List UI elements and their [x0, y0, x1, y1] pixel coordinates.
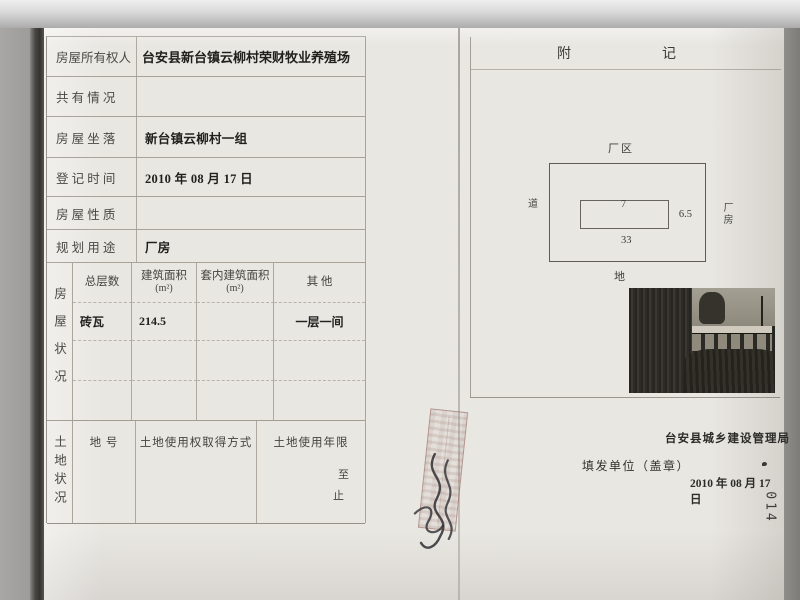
field-value-co-ownership: [137, 77, 365, 116]
form-row-house-nature: 房 屋 性 质: [47, 197, 365, 230]
land-status-side-text: 土地状况: [50, 435, 69, 509]
empty-cell: [274, 381, 365, 420]
column-header-area-unit: (m²): [155, 283, 172, 295]
cell-other: 一层一间: [274, 303, 365, 341]
site-plan-left-label: 道: [528, 195, 538, 210]
backdrop-right: [784, 28, 800, 600]
column-header-other: 其 他: [274, 263, 365, 303]
building-status-table: 房屋状况 总层数 建筑面积 (m²) 套内建筑面积 (m²) 其 他 砖瓦 21…: [47, 263, 365, 421]
field-label-owner: 房屋所有权人: [47, 37, 137, 76]
empty-cell: [73, 381, 132, 420]
building-footprint-rect: 7 6.5 33: [580, 200, 669, 229]
photo-roofline: [692, 326, 772, 333]
property-photo: [629, 288, 775, 393]
document-page: 房屋所有权人 台安县新台镇云柳村荣财牧业养殖场 共 有 情 况 房 屋 坐 落 …: [44, 28, 784, 600]
issuer-seal-label: 填发单位（盖章）: [582, 457, 690, 474]
site-boundary-rect: 7 6.5 33: [549, 163, 706, 262]
field-value-house-nature: [137, 197, 365, 229]
empty-cell: [274, 341, 365, 381]
form-row-co-ownership: 共 有 情 况: [47, 77, 365, 117]
column-header-floors: 总层数: [73, 263, 132, 303]
site-plan-area-label: 厂区: [608, 140, 634, 156]
page-number: 014: [763, 488, 778, 528]
column-header-floors-text: 总层数: [85, 276, 120, 289]
field-value-planned-use: 厂房: [137, 230, 365, 262]
land-use-right-method-header: 土地使用权取得方式: [136, 434, 256, 450]
annotation-section: 附 记 厂区 7 6.5 33 道 厂房 地: [470, 37, 780, 398]
land-use-term-to: 至: [338, 466, 349, 482]
form-row-location: 房 屋 坐 落 新台镇云柳村一组: [47, 117, 365, 158]
form-row-planned-use: 规 划 用 途 厂房: [47, 230, 365, 263]
land-use-term-cell: 土地使用年限 至 止: [257, 421, 365, 523]
field-label-registration-date: 登 记 时 间: [47, 158, 137, 196]
building-status-side-text: 房屋状况: [50, 287, 69, 397]
desk-surface: [0, 0, 800, 30]
property-registration-form: 房屋所有权人 台安县新台镇云柳村荣财牧业养殖场 共 有 情 况 房 屋 坐 落 …: [46, 36, 366, 523]
empty-cell: [197, 381, 274, 420]
cell-area: 214.5: [132, 303, 197, 341]
column-header-inner-area-text: 套内建筑面积: [201, 270, 270, 283]
dimension-right: 6.5: [679, 209, 692, 220]
form-row-registration-date: 登 记 时 间 2010 年 08 月 17 日: [47, 158, 365, 197]
column-header-inner-area-unit: (m²): [226, 283, 243, 295]
site-plan-right-label: 厂房: [719, 202, 734, 226]
site-plan-bottom-label: 地: [614, 268, 625, 284]
handwritten-signature: [396, 444, 481, 568]
column-header-area: 建筑面积 (m²): [132, 263, 197, 303]
issuing-authority: 台安县城乡建设管理局: [630, 430, 790, 446]
land-use-right-method-cell: 土地使用权取得方式: [136, 421, 257, 523]
backdrop-left: [0, 28, 30, 600]
column-header-other-text: 其 他: [307, 276, 333, 289]
field-label-house-nature: 房 屋 性 质: [47, 197, 137, 229]
land-plot-number-cell: 地 号: [73, 421, 136, 523]
form-row-owner: 房屋所有权人 台安县新台镇云柳村荣财牧业养殖场: [47, 37, 365, 77]
column-header-inner-area: 套内建筑面积 (m²): [197, 263, 274, 303]
scanned-document-photo: 房屋所有权人 台安县新台镇云柳村荣财牧业养殖场 共 有 情 况 房 屋 坐 落 …: [0, 0, 800, 600]
field-value-owner: 台安县新台镇云柳村荣财牧业养殖场: [137, 37, 365, 76]
dimension-bottom: 33: [621, 235, 632, 246]
land-plot-number-header: 地 号: [73, 434, 135, 450]
cell-inner-area: [197, 303, 274, 341]
ink-mark: [762, 462, 767, 466]
land-status-section: 土地状况 地 号 土地使用权取得方式 土地使用年限 至 止: [47, 421, 365, 524]
land-use-term-stop: 止: [333, 487, 344, 503]
field-label-location: 房 屋 坐 落: [47, 117, 137, 157]
annotation-title-rule: [471, 69, 781, 70]
land-status-side-label: 土地状况: [47, 421, 73, 523]
column-header-area-text: 建筑面积: [141, 270, 187, 283]
empty-cell: [132, 341, 197, 381]
empty-cell: [73, 341, 132, 381]
photo-foreground: [684, 349, 775, 393]
dimension-top: 7: [621, 199, 626, 210]
empty-cell: [132, 381, 197, 420]
cell-structure: 砖瓦: [73, 303, 132, 341]
land-use-term-header: 土地使用年限: [257, 434, 365, 450]
annotation-title: 附 记: [557, 43, 677, 63]
field-value-registration-date: 2010 年 08 月 17 日: [137, 158, 365, 196]
building-status-side-label: 房屋状况: [47, 263, 73, 420]
field-value-location: 新台镇云柳村一组: [137, 117, 365, 157]
photo-tree: [699, 292, 725, 324]
empty-cell: [197, 341, 274, 381]
field-label-planned-use: 规 划 用 途: [47, 230, 137, 262]
field-label-co-ownership: 共 有 情 况: [47, 77, 137, 116]
page-binding-shadow: [30, 28, 44, 600]
